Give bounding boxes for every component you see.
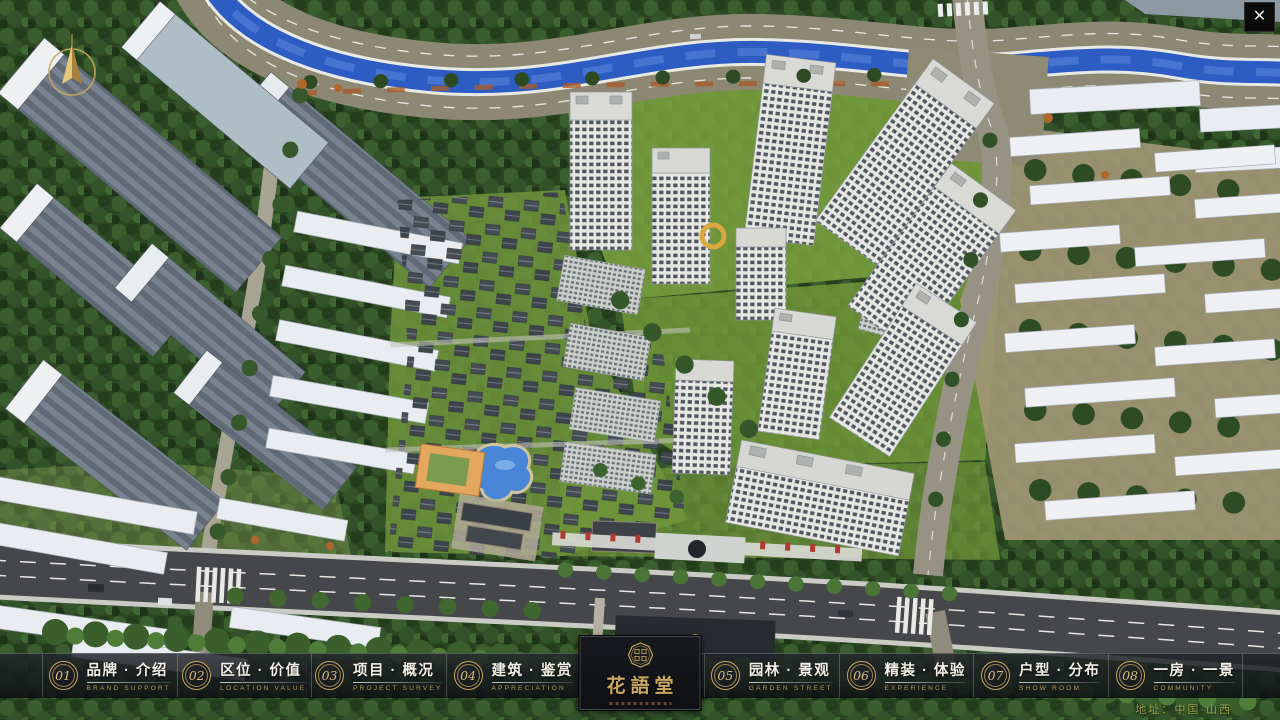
nav-number: 08: [1122, 668, 1138, 683]
nav-subtitle: EXPERIENCE: [885, 685, 949, 692]
nav-number-badge: 04: [454, 661, 483, 690]
nav-divider-line: [220, 682, 306, 683]
masterplan-render: [0, 0, 1280, 720]
nav-subtitle: BRAND SUPPORT: [87, 685, 171, 692]
nav-subtitle: SHOW ROOM: [1019, 685, 1081, 692]
nav-divider-line: [87, 682, 171, 683]
nav-label: 户型 · 分布: [1019, 659, 1100, 680]
nav-divider-line: [749, 682, 833, 683]
nav-item-fine-decoration[interactable]: 06 精装 · 体验EXPERIENCE: [840, 654, 975, 697]
nav-subtitle: LOCATION VALUE: [220, 685, 306, 692]
logo-tagline: [609, 702, 671, 705]
nav-number: 02: [189, 668, 205, 683]
nav-subtitle: PROJECT SURVEY: [353, 685, 442, 692]
nav-number: 05: [717, 668, 733, 683]
nav-label: 项目 · 概况: [353, 659, 434, 680]
nav-number-badge: 03: [315, 661, 344, 690]
nav-label: 精装 · 体验: [885, 659, 966, 680]
nav-label: 区位 · 价值: [220, 659, 301, 680]
nav-number: 04: [460, 668, 476, 683]
compass-north-icon: [40, 32, 104, 108]
nav-number: 07: [988, 668, 1004, 683]
nav-subtitle: GARDEN STREET: [749, 685, 833, 692]
nav-item-garden-landscape[interactable]: 05 园林 · 景观GARDEN STREET: [705, 654, 840, 697]
nav-label: 一房 · 一景: [1154, 659, 1235, 680]
nav-divider-line: [1154, 682, 1235, 683]
nav-number-badge: 08: [1116, 661, 1145, 690]
nav-number-badge: 05: [711, 661, 740, 690]
nav-number-badge: 07: [981, 661, 1010, 690]
nav-subtitle: APPRECIATION: [492, 685, 566, 692]
logo-title: 花語堂: [601, 671, 678, 698]
nav-divider-line: [353, 682, 442, 683]
nav-number-badge: 06: [847, 661, 876, 690]
nav-label: 建筑 · 鉴赏: [492, 659, 573, 680]
nav-spacer: [0, 654, 43, 697]
nav-divider-line: [885, 682, 966, 683]
nav-item-location-value[interactable]: 02 区位 · 价值LOCATION VALUE: [178, 654, 313, 697]
nav-item-architecture[interactable]: 04 建筑 · 鉴赏APPRECIATION: [447, 654, 582, 697]
nav-item-room-view[interactable]: 08 一房 · 一景COMMUNITY: [1109, 654, 1244, 697]
nav-number: 01: [55, 668, 71, 683]
nav-divider-line: [492, 682, 573, 683]
project-address: 地址：中国·山西: [1135, 701, 1232, 717]
nav-spacer: [1243, 654, 1280, 697]
nav-item-unit-layout[interactable]: 07 户型 · 分布SHOW ROOM: [974, 654, 1109, 697]
nav-item-project-survey[interactable]: 03 项目 · 概况PROJECT SURVEY: [312, 654, 447, 697]
nav-number-badge: 02: [182, 661, 211, 690]
nav-number: 03: [322, 668, 338, 683]
nav-subtitle: COMMUNITY: [1154, 685, 1214, 692]
nav-label: 园林 · 景观: [749, 659, 830, 680]
nav-number: 06: [853, 668, 869, 683]
nav-divider-line: [1019, 682, 1100, 683]
nav-number-badge: 01: [49, 661, 78, 690]
nav-label: 品牌 · 介绍: [87, 659, 168, 680]
logo-seal-icon: [626, 641, 654, 669]
nav-item-brand-intro[interactable]: 01 品牌 · 介绍BRAND SUPPORT: [43, 654, 178, 697]
project-logo-plaque[interactable]: 花語堂: [580, 636, 701, 710]
close-button[interactable]: ✕: [1244, 2, 1275, 32]
presentation-window: ✕ 01 品牌 · 介绍BRAND SUPPORT 02 区位 · 价值LOCA…: [0, 0, 1280, 720]
